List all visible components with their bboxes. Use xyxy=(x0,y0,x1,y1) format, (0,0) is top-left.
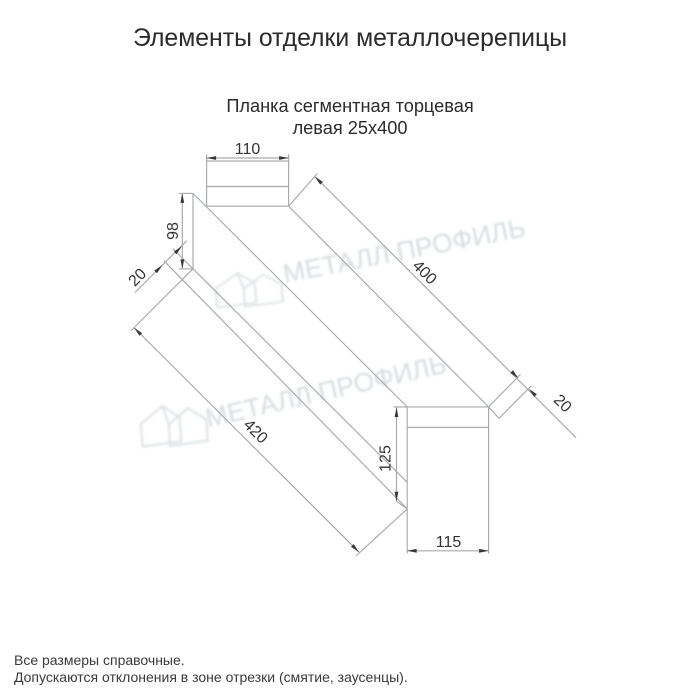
svg-text:115: 115 xyxy=(436,534,462,551)
svg-text:98: 98 xyxy=(165,222,182,240)
svg-text:125: 125 xyxy=(378,445,395,472)
svg-text:110: 110 xyxy=(235,141,261,158)
svg-text:МЕТАЛЛ ПРОФИЛЬ: МЕТАЛЛ ПРОФИЛЬ xyxy=(203,349,450,434)
svg-text:20: 20 xyxy=(550,392,575,417)
svg-text:20: 20 xyxy=(126,265,151,290)
svg-text:МЕТАЛЛ ПРОФИЛЬ: МЕТАЛЛ ПРОФИЛЬ xyxy=(280,212,527,288)
